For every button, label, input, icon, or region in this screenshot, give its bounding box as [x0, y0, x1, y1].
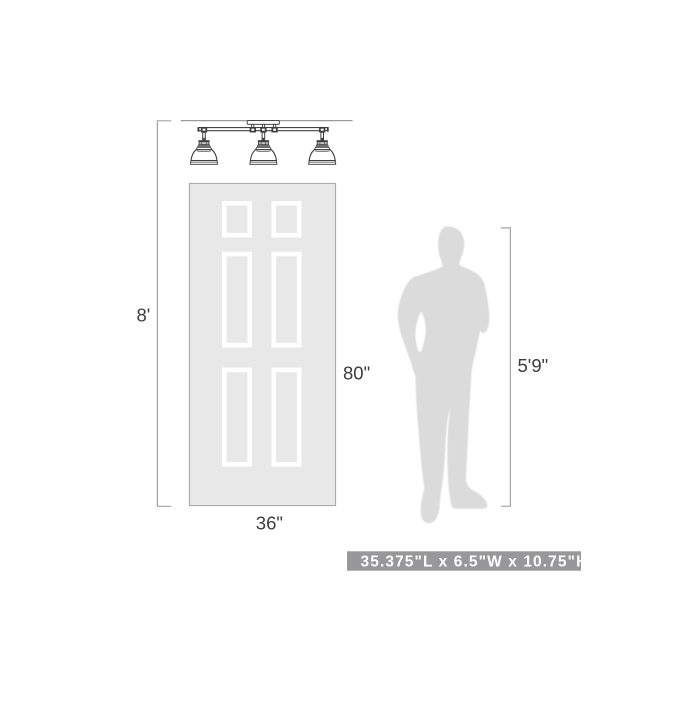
svg-text:80": 80" [343, 362, 370, 383]
svg-text:36": 36" [256, 513, 283, 534]
svg-text:35.375"L x 6.5"W x 10.75"H: 35.375"L x 6.5"W x 10.75"H [361, 554, 589, 571]
svg-text:5'9": 5'9" [518, 355, 549, 376]
svg-text:8': 8' [137, 305, 151, 326]
